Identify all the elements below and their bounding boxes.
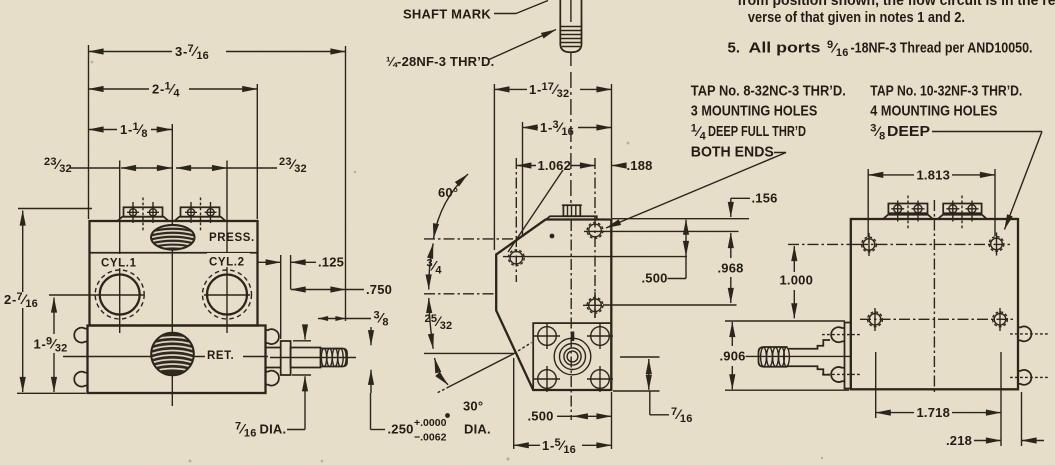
svg-text:BOTH ENDS: BOTH ENDS (691, 144, 774, 161)
svg-text:.250: .250 (388, 422, 414, 437)
svg-text:RET.: RET. (207, 350, 234, 362)
svg-text:from position shown, the flow: from position shown, the flow circuit is… (738, 0, 1055, 9)
svg-text:.500: .500 (642, 271, 668, 286)
svg-text:.188: .188 (627, 158, 653, 173)
svg-text:PRESS.: PRESS. (209, 232, 255, 244)
svg-text:.968: .968 (718, 261, 744, 276)
svg-text:−.0062: −.0062 (414, 432, 447, 444)
svg-text:TAP No. 10-32NF-3 THR’D.: TAP No. 10-32NF-3 THR’D. (870, 82, 1022, 99)
svg-text:5.: 5. (728, 40, 741, 57)
svg-text:All ports: All ports (749, 40, 821, 57)
svg-text:¼-28NF-3 THR’D.: ¼-28NF-3 THR’D. (386, 54, 494, 69)
svg-text:TAP No. 8-32NC-3 THR’D.: TAP No. 8-32NC-3 THR’D. (691, 82, 846, 99)
svg-text:+.0000: +.0000 (414, 417, 447, 429)
svg-text:-18NF-3 Thread per AND10050.: -18NF-3 Thread per AND10050. (851, 40, 1033, 57)
svg-text:30°: 30° (463, 399, 483, 414)
svg-text:CYL.2: CYL.2 (209, 257, 245, 269)
svg-text:3 MOUNTING HOLES: 3 MOUNTING HOLES (691, 103, 818, 120)
svg-text:.156: .156 (752, 191, 778, 206)
svg-text:.125: .125 (318, 255, 344, 270)
svg-text:DIA.: DIA. (464, 422, 491, 437)
svg-text:verse of that given in notes 1: verse of that given in notes 1 and 2. (748, 9, 965, 26)
svg-text:.218: .218 (946, 433, 972, 448)
svg-text:SHAFT MARK: SHAFT MARK (403, 7, 491, 22)
svg-text:DEEP FULL THR’D: DEEP FULL THR’D (708, 123, 806, 140)
svg-text:1.000: 1.000 (780, 273, 814, 288)
svg-text:1.813: 1.813 (917, 168, 951, 183)
svg-text:60°: 60° (438, 185, 458, 200)
svg-text:CYL.1: CYL.1 (101, 258, 137, 270)
svg-text:4 MOUNTING HOLES: 4 MOUNTING HOLES (870, 103, 997, 120)
svg-text:.750: .750 (366, 282, 392, 297)
svg-text:1.718: 1.718 (917, 405, 951, 420)
svg-text:1.062: 1.062 (538, 158, 572, 173)
svg-text:.500: .500 (528, 409, 554, 424)
svg-text:DEEP: DEEP (887, 123, 930, 140)
svg-text:.906: .906 (720, 349, 746, 364)
